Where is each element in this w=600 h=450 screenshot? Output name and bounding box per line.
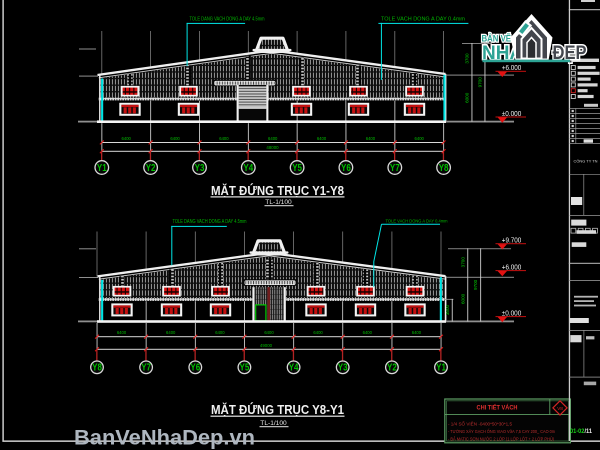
svg-text:6400: 6400 [117,330,127,335]
svg-text:TOLE VACH DONG A DAY 0.4mm: TOLE VACH DONG A DAY 0.4mm [386,219,448,224]
svg-text:49000: 49000 [260,343,273,348]
svg-text:Y8: Y8 [92,363,102,374]
svg-text:Y4: Y4 [289,363,299,374]
svg-text:- 1/4 SỐ VIÊN -0400*50*30*1,5: - 1/4 SỐ VIÊN -0400*50*30*1,5 [448,421,513,426]
svg-text:9700: 9700 [478,77,483,88]
svg-text:6400: 6400 [170,136,180,141]
svg-text:6400: 6400 [166,330,176,335]
svg-text:6400: 6400 [264,330,274,335]
svg-text:Y5: Y5 [292,163,302,174]
svg-text:Y4: Y4 [243,163,253,174]
svg-text:MẶT ĐỨNG TRỤC Y8-Y1: MẶT ĐỨNG TRỤC Y8-Y1 [211,402,344,417]
svg-text:01-02/11: 01-02/11 [570,428,592,435]
svg-text:6400: 6400 [366,136,376,141]
svg-text:Y3: Y3 [338,363,348,374]
svg-text:6000: 6000 [460,293,465,304]
svg-text:6400: 6400 [268,136,278,141]
svg-text:6400: 6400 [215,330,225,335]
svg-text:TL-1/100: TL-1/100 [265,199,292,206]
svg-text:3700: 3700 [460,257,465,268]
svg-text:6400: 6400 [415,136,425,141]
svg-text:9700: 9700 [473,279,478,290]
svg-text:48000: 48000 [266,145,279,150]
svg-text:- BẢ MATIC SƠN NƯỚC 2 LỚP (1 L: - BẢ MATIC SƠN NƯỚC 2 LỚP (1 LỚP LÓT + 2… [448,437,554,442]
svg-text:6400: 6400 [313,330,323,335]
svg-text:Y6: Y6 [341,163,351,174]
svg-text:Y8: Y8 [439,163,449,174]
svg-text:Y7: Y7 [390,163,400,174]
svg-text:6400: 6400 [363,330,373,335]
svg-text:Y2: Y2 [387,363,397,374]
svg-text:6400: 6400 [317,136,327,141]
svg-text:TOLE VACH DONG A DAY 0.4mm: TOLE VACH DONG A DAY 0.4mm [381,16,465,22]
svg-text:TL-1/100: TL-1/100 [260,420,287,427]
svg-text:MẶT ĐỨNG TRỤC Y1-Y8: MẶT ĐỨNG TRỤC Y1-Y8 [211,183,344,198]
svg-text:Y7: Y7 [141,363,151,374]
svg-text:TOLE DANG VACH DONG A DAY 4.5m: TOLE DANG VACH DONG A DAY 4.5mm [173,219,247,225]
svg-text:3700: 3700 [465,53,470,64]
svg-text:6400: 6400 [219,136,229,141]
svg-text:3500: 3500 [445,304,450,315]
svg-text:- TƯỜNG XÂY GẠCH ỐNG VIAO VữA: - TƯỜNG XÂY GẠCH ỐNG VIAO VữA 7,5 CAY 20… [448,429,555,434]
svg-text:6000: 6000 [465,92,470,103]
svg-text:CÔNG TY TN: CÔNG TY TN [574,159,598,164]
svg-text:Y3: Y3 [195,163,205,174]
svg-text:6400: 6400 [122,136,132,141]
svg-text:Y1: Y1 [436,363,446,374]
svg-text:V8: V8 [557,406,563,412]
svg-text:BẢN VẼ: BẢN VẼ [482,32,512,43]
svg-text:Y6: Y6 [190,363,200,374]
svg-text:TOLE DANG VACH DONG A DAY 4.5m: TOLE DANG VACH DONG A DAY 4.5mm [190,16,265,22]
svg-text:Y2: Y2 [146,163,156,174]
svg-text:6400: 6400 [412,330,422,335]
svg-text:BanVeNhaDep.vn: BanVeNhaDep.vn [74,427,255,450]
svg-text:Y1: Y1 [97,163,107,174]
svg-text:Y5: Y5 [240,363,250,374]
